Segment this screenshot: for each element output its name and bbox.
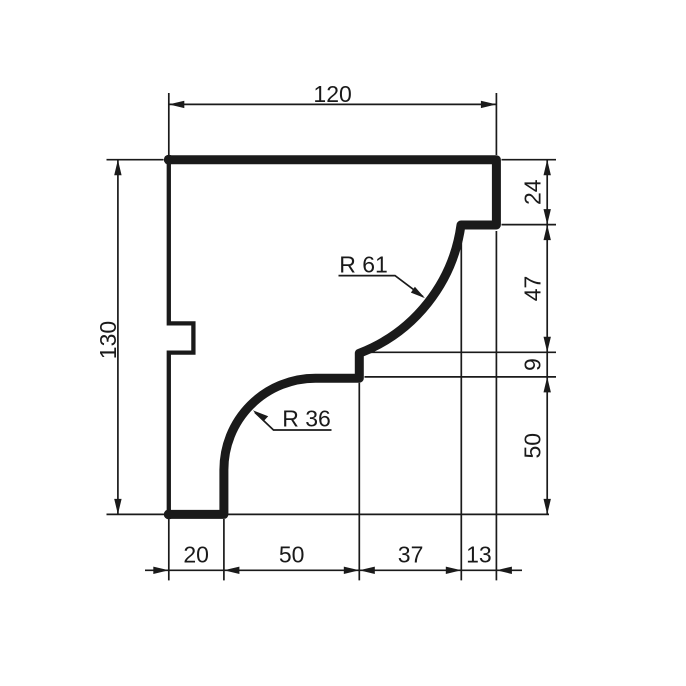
svg-text:9: 9 bbox=[520, 358, 546, 371]
svg-text:50: 50 bbox=[279, 542, 305, 568]
svg-text:20: 20 bbox=[183, 542, 209, 568]
svg-text:120: 120 bbox=[313, 81, 351, 107]
svg-text:37: 37 bbox=[398, 542, 424, 568]
svg-text:24: 24 bbox=[520, 179, 546, 205]
svg-text:13: 13 bbox=[466, 542, 492, 568]
svg-text:50: 50 bbox=[520, 433, 546, 459]
svg-text:47: 47 bbox=[520, 276, 546, 302]
svg-text:130: 130 bbox=[95, 321, 121, 359]
svg-text:R 61: R 61 bbox=[339, 252, 388, 278]
svg-text:R 36: R 36 bbox=[282, 405, 331, 431]
